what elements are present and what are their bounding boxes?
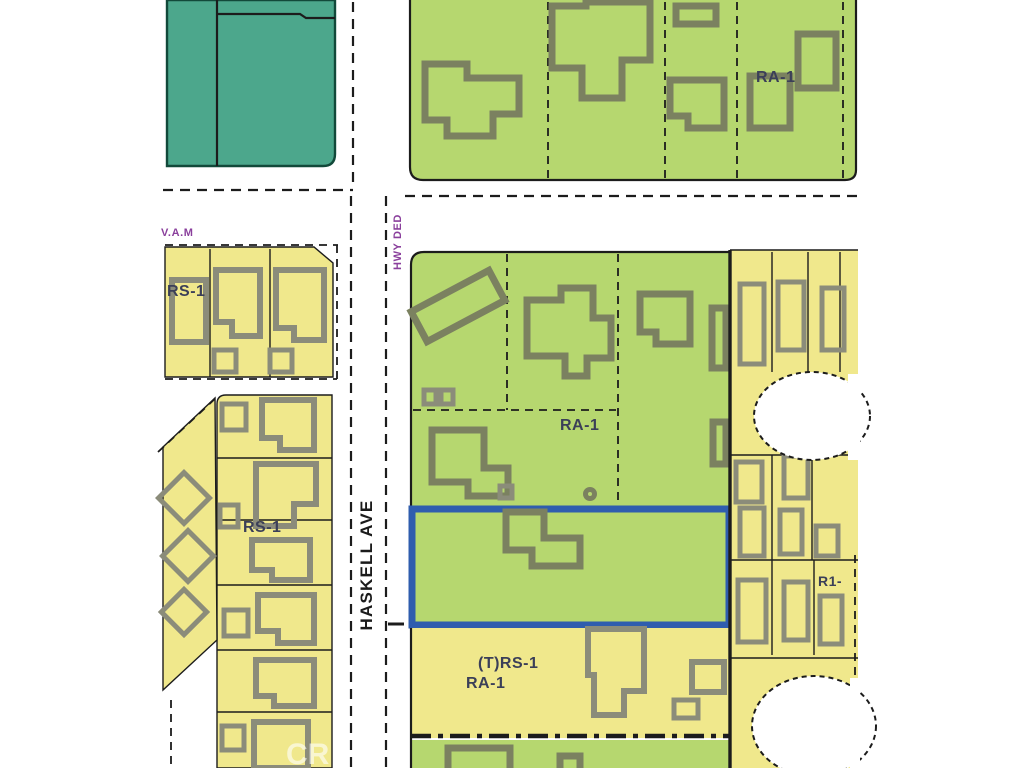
left-lower-yellow-strip: RS-1 (217, 395, 332, 768)
street-label-vam: V.A.M (161, 227, 194, 239)
zoning-map-canvas: RA-1 V.A.M RS-1 HASKELL AVE HWY DED (0, 0, 1024, 768)
left-upper-yellow-block: RS-1 (165, 245, 338, 380)
zone-label-ra1-center: RA-1 (560, 417, 599, 434)
watermark-text: CR (286, 738, 330, 768)
zone-label-rs1-upper: RS-1 (167, 283, 205, 300)
far-left-diagonal-parcel (158, 396, 218, 768)
bottom-yellow-parcel-block: (T)RS-1 RA-1 (411, 628, 730, 738)
street-label-hwy-ded: HWY DED (392, 214, 404, 270)
top-green-parcel-block: RA-1 (410, 0, 856, 180)
zone-label-ra1-top: RA-1 (756, 69, 795, 86)
subject-parcel[interactable] (412, 509, 729, 625)
teal-parcel-block (167, 0, 335, 166)
zone-label-ra1-bottom: RA-1 (466, 675, 505, 692)
haskell-ave-street: HASKELL AVE HWY DED (351, 196, 404, 768)
zoning-map: RA-1 V.A.M RS-1 HASKELL AVE HWY DED (0, 0, 1024, 768)
street-label-haskell-ave: HASKELL AVE (357, 500, 376, 631)
bottom-green-strip (411, 740, 729, 768)
zone-label-rs1-left: RS-1 (243, 519, 281, 536)
right-yellow-parcel-strip: R1- (730, 250, 876, 768)
zone-label-r1: R1- (818, 573, 842, 589)
zone-label-trs1: (T)RS-1 (478, 655, 538, 672)
